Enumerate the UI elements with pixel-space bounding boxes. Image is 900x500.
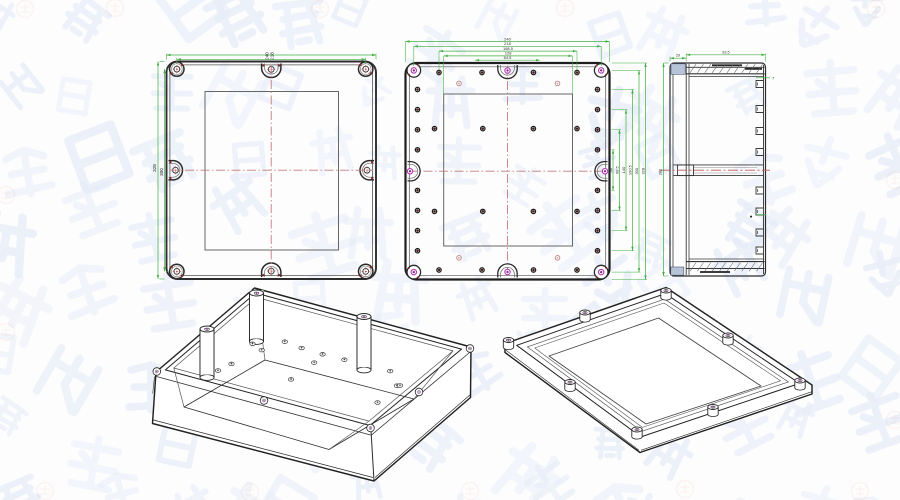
svg-text:218: 218 — [269, 52, 274, 60]
svg-text:140: 140 — [621, 166, 626, 173]
svg-text:64.5: 64.5 — [504, 55, 513, 60]
svg-text:190.5: 190.5 — [627, 164, 632, 175]
svg-text:282: 282 — [659, 169, 663, 175]
svg-text:7: 7 — [772, 76, 775, 81]
svg-text:328: 328 — [152, 164, 157, 172]
svg-text:93.5: 93.5 — [722, 51, 729, 55]
svg-text:98.5: 98.5 — [614, 165, 619, 174]
svg-text:40: 40 — [608, 167, 613, 172]
svg-text:300: 300 — [159, 168, 164, 176]
svg-text:29: 29 — [676, 54, 680, 58]
svg-text:328: 328 — [640, 167, 645, 174]
svg-text:300: 300 — [634, 167, 639, 174]
